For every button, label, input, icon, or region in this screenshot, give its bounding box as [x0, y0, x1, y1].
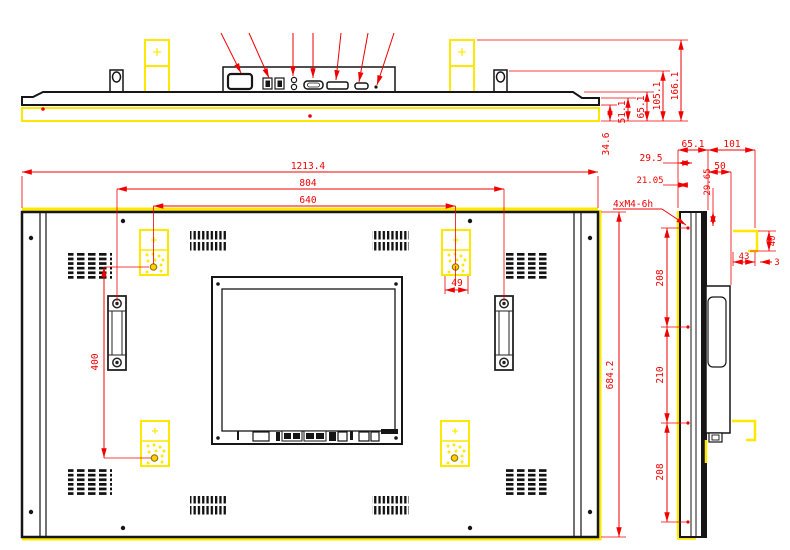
dim-40: 40 — [768, 236, 778, 247]
drawing-svg: 34.6 51.1 65.1 105.1 166.1 — [0, 0, 790, 550]
power-inlet-connector — [228, 74, 252, 89]
vent-grille — [68, 468, 112, 496]
top-view: 34.6 51.1 65.1 105.1 166.1 — [22, 33, 688, 158]
vesa-bracket-top-right — [442, 230, 470, 275]
dim-804: 804 — [299, 178, 316, 189]
dim-3: 3 — [774, 258, 779, 268]
dim-49: 49 — [451, 278, 463, 289]
rear-body-box — [706, 286, 730, 442]
vent-grille — [190, 231, 227, 252]
mounting-lug-right — [494, 70, 507, 92]
vent-grille — [506, 468, 550, 496]
top-mount-bracket-left — [145, 40, 169, 92]
vesa-bracket-top-left — [140, 230, 168, 275]
dim-208-top: 208 — [655, 269, 666, 286]
dim-101: 101 — [723, 139, 740, 150]
hdmi-connector — [355, 83, 368, 89]
vent-grille — [372, 231, 409, 252]
vent-grille — [68, 252, 112, 280]
dim-65-1-side: 65.1 — [682, 139, 705, 150]
dim-29-65: 29.65 — [703, 168, 713, 195]
wall-hook-bottom — [732, 421, 755, 440]
handle-left — [108, 296, 126, 370]
dim-34-6: 34.6 — [601, 132, 612, 155]
vga-connector — [304, 81, 323, 89]
wall-hook-top — [733, 231, 757, 251]
dim-684-2: 684.2 — [605, 361, 616, 390]
chassis-profile — [22, 92, 599, 105]
dim-166-1: 166.1 — [670, 71, 681, 100]
vesa-bracket-bottom-right — [441, 421, 469, 466]
dim-105-1: 105.1 — [652, 81, 663, 110]
dim-1213-4: 1213.4 — [291, 161, 326, 172]
thread-callout: 4xM4-6h — [613, 199, 653, 210]
monitor-engineering-drawing: 34.6 51.1 65.1 105.1 166.1 — [0, 0, 790, 550]
dim-640: 640 — [299, 195, 316, 206]
datum-dot — [41, 107, 45, 111]
indicator-dot — [374, 85, 377, 88]
dim-51-1: 51.1 — [617, 100, 628, 123]
electronics-module — [212, 277, 402, 444]
dim-29-5: 29.5 — [640, 153, 663, 164]
handle-right — [495, 296, 513, 370]
vent-grille — [506, 252, 550, 280]
mounting-lug-left — [110, 70, 123, 92]
rear-view: 1213.4 804 640 400 49 684.2 — [22, 161, 626, 541]
vent-grille — [372, 496, 409, 517]
dim-21-05: 21.05 — [636, 176, 663, 186]
vent-grille — [190, 496, 227, 517]
dim-210: 210 — [655, 366, 666, 383]
dim-43: 43 — [739, 252, 750, 262]
dim-208-bottom: 208 — [655, 463, 666, 480]
side-view: 65.1 101 29.5 50 21.05 29.65 — [613, 139, 780, 539]
dim-65-1: 65.1 — [636, 95, 647, 118]
vesa-bracket-bottom-left — [141, 421, 169, 466]
dvi-connector — [327, 82, 348, 89]
datum-dot — [308, 114, 312, 118]
dim-400: 400 — [90, 353, 101, 370]
dim-50: 50 — [714, 161, 726, 172]
